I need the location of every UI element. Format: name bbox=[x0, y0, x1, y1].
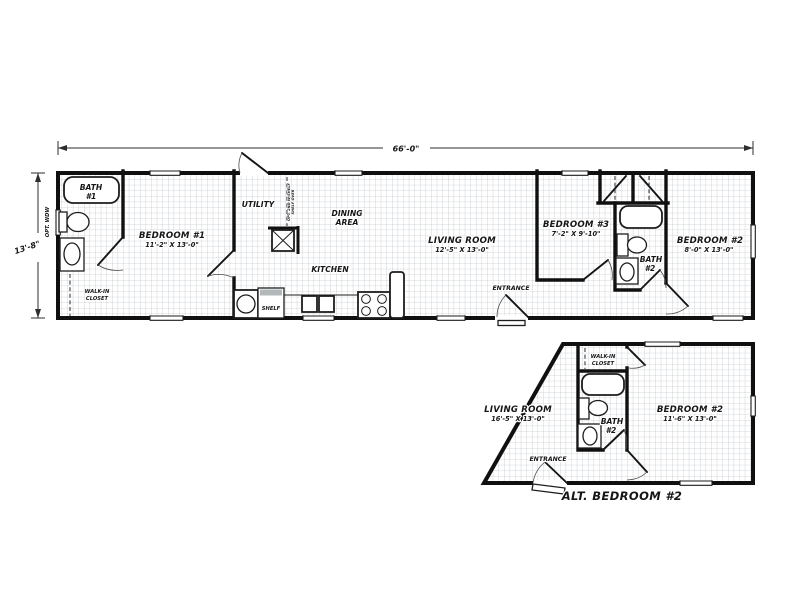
refrigerator-icon bbox=[390, 272, 404, 318]
alt-walkin-label-2: CLOSET bbox=[592, 361, 615, 367]
window-top-bedroom1 bbox=[150, 170, 180, 176]
bedroom1-label: BEDROOM #1 bbox=[139, 231, 205, 241]
shelf-cabinet-icon bbox=[258, 288, 284, 318]
alt-bath2-number: #2 bbox=[606, 426, 617, 435]
door-utility-exterior bbox=[239, 153, 268, 176]
alt-bedroom2-label: BEDROOM #2 bbox=[657, 405, 723, 415]
bathtub2-icon bbox=[620, 206, 662, 228]
living-label: LIVING ROOM bbox=[428, 236, 496, 246]
alt-window-right-bedroom2 bbox=[750, 396, 756, 416]
dimension-height: 13'-8" bbox=[13, 173, 45, 318]
alt-living-label: LIVING ROOM bbox=[484, 405, 552, 415]
living-size: 12'-5" X 13'-0" bbox=[435, 246, 489, 254]
alt-bedroom2-size: 11'-6" X 13'-0" bbox=[663, 415, 717, 423]
opt-window-label: OPT. WDW bbox=[45, 207, 51, 238]
dim-width-label: 66'-0" bbox=[393, 145, 420, 154]
washer-icon bbox=[234, 290, 258, 318]
alt-bath2-label: BATH bbox=[601, 417, 624, 426]
alt-bathtub-icon bbox=[582, 374, 624, 395]
window-bottom-living bbox=[437, 315, 465, 321]
bath1-number: #1 bbox=[86, 192, 97, 201]
utility-note-2: OPT. 2ND W/SHELF bbox=[287, 182, 291, 221]
bath1-label: BATH bbox=[80, 183, 103, 192]
bedroom2-label: BEDROOM #2 bbox=[677, 236, 743, 246]
dim-height-label: 13'-8" bbox=[13, 239, 41, 256]
bedroom1-size: 11'-2" X 13'-0" bbox=[145, 241, 199, 249]
floorplan-canvas: 66'-0" 13'-8" bbox=[0, 0, 792, 612]
toilet-icon bbox=[59, 212, 89, 232]
window-top-bedroom3 bbox=[562, 170, 588, 176]
alt-window-bottom-bedroom2 bbox=[680, 480, 712, 486]
alt-plan: WALK-IN CLOSET LIVING ROOM 16'-5" X 13'-… bbox=[484, 341, 756, 503]
walkin-closet-label-1: WALK-IN bbox=[85, 289, 110, 295]
alt-toilet-icon bbox=[578, 424, 601, 448]
alt-window-top-bedroom2 bbox=[645, 341, 680, 347]
dining-label-1: DINING bbox=[332, 209, 363, 218]
alt-plan-caption: ALT. BEDROOM #2 bbox=[561, 489, 683, 503]
window-bottom-bedroom2 bbox=[713, 315, 743, 321]
shelf-label: SHELF bbox=[262, 306, 281, 312]
toilet2-icon bbox=[616, 258, 638, 284]
bedroom2-size: 8'-0" X 13'-0" bbox=[685, 246, 734, 254]
window-bottom-kitchen-sink bbox=[303, 315, 334, 321]
dim-arrow-top bbox=[35, 173, 41, 182]
dining-label-2: AREA bbox=[335, 218, 359, 227]
kitchen-label: KITCHEN bbox=[311, 265, 349, 274]
sink-vanity-icon bbox=[60, 238, 84, 271]
water-heater-icon bbox=[272, 230, 294, 251]
window-bottom-bedroom1 bbox=[150, 315, 183, 321]
stove-icon bbox=[358, 292, 390, 318]
bedroom3-label: BEDROOM #3 bbox=[543, 220, 609, 230]
window-top-dining bbox=[335, 170, 362, 176]
window-right-bedroom2 bbox=[750, 225, 756, 258]
utility-label: UTILITY bbox=[242, 200, 276, 209]
dim-arrow-right bbox=[744, 145, 753, 151]
alt-entrance-label: ENTRANCE bbox=[529, 456, 567, 463]
bedroom3-size: 7'-2" X 9'-10" bbox=[552, 230, 601, 238]
dim-arrow-bottom bbox=[35, 309, 41, 318]
floorplan-page: 66'-0" 13'-8" bbox=[0, 0, 792, 612]
entrance-label: ENTRANCE bbox=[492, 285, 530, 292]
alt-walkin-label-1: WALK-IN bbox=[591, 354, 616, 360]
dimension-width: 66'-0" bbox=[58, 141, 753, 155]
walkin-closet-label-2: CLOSET bbox=[86, 296, 109, 302]
bath2-number: #2 bbox=[645, 264, 656, 273]
utility-note-1: SHELF OVER bbox=[291, 189, 295, 214]
bath2-label: BATH bbox=[640, 255, 663, 264]
dim-arrow-left bbox=[58, 145, 67, 151]
alt-living-size: 16'-5" X 13'-0" bbox=[491, 415, 545, 423]
main-plan: BATH #1 OPT. WDW WALK-IN CLOSET BEDROOM … bbox=[45, 153, 756, 326]
